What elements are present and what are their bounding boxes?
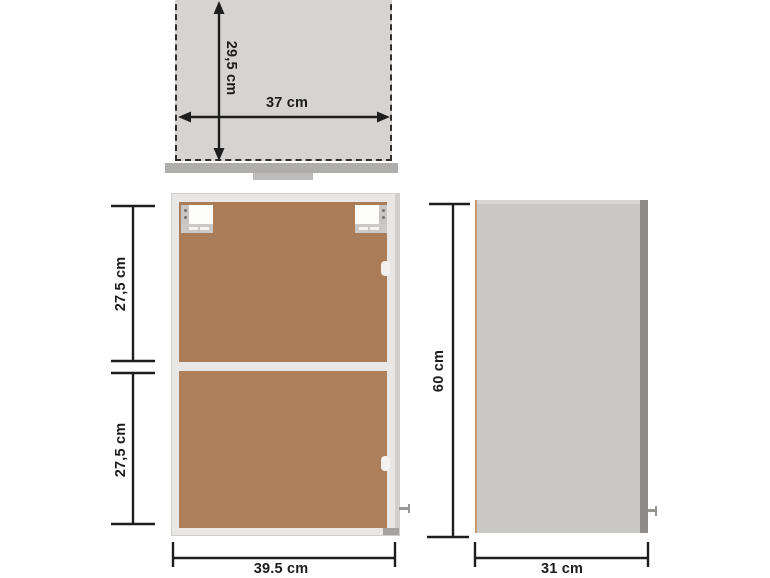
bracket-side-plate: [379, 205, 387, 224]
side-depth-label: 31 cm: [541, 561, 583, 577]
bracket-screw-hole: [184, 209, 187, 212]
front-view-panel: [172, 194, 399, 535]
hinge-mount-lower: [381, 456, 390, 471]
front-upper-compartment-label: 27,5 cm: [113, 257, 129, 312]
front-width-label: 39.5 cm: [254, 561, 309, 577]
bracket-rail: [355, 224, 387, 233]
top-view-width-label: 37 cm: [266, 95, 308, 111]
front-view-handle: [408, 504, 410, 513]
bracket-screw-hole: [382, 209, 385, 212]
side-view-handle: [655, 506, 657, 516]
top-view-front-edge: [165, 163, 398, 173]
front-lower-compartment-label: 27,5 cm: [113, 423, 129, 478]
cabinet-dimension-diagram: 29,5 cm 37 cm 27,5 cm 27,5 cm 39.5 cm 60…: [0, 0, 770, 578]
bracket-screw-hole: [184, 216, 187, 219]
side-height-label: 60 cm: [431, 350, 447, 392]
bracket-rail: [181, 224, 213, 233]
wall-mount-bracket-left: [181, 205, 213, 233]
bracket-slot: [200, 227, 209, 230]
wall-mount-bracket-right: [355, 205, 387, 233]
front-view-right-edge: [395, 194, 399, 535]
side-view-door-edge: [640, 200, 648, 533]
top-view-depth-label: 29,5 cm: [223, 41, 239, 96]
side-view-top-edge: [475, 200, 648, 204]
top-view-panel: [175, 0, 392, 161]
bracket-screw-hole: [382, 216, 385, 219]
hinge-mount-upper: [381, 261, 390, 276]
bracket-slot: [359, 227, 368, 230]
top-view-mount-tab: [253, 173, 313, 180]
bracket-slot: [189, 227, 198, 230]
side-view-back-edge: [475, 200, 477, 533]
bracket-side-plate: [181, 205, 189, 224]
front-view-bottom-corner: [383, 528, 399, 535]
bracket-slot: [370, 227, 379, 230]
side-view-panel: [475, 200, 648, 533]
front-view-lower-back-panel: [179, 371, 387, 528]
